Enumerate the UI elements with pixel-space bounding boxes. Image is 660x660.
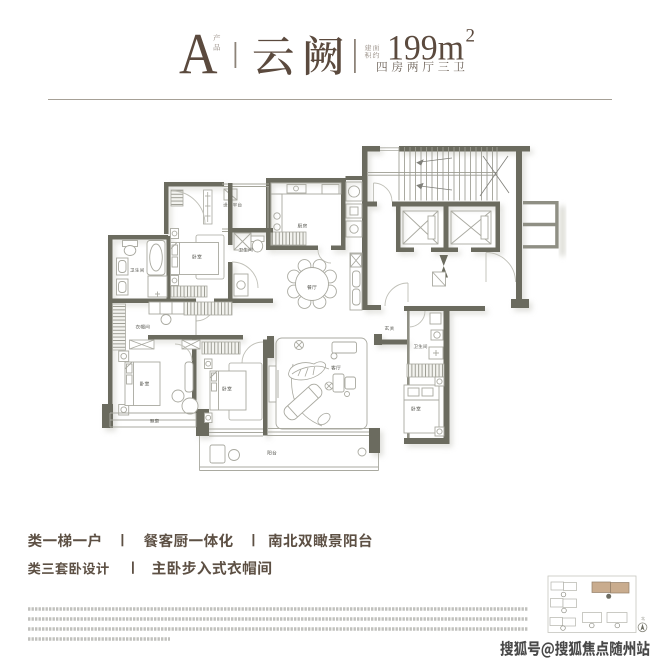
svg-text:A: A — [179, 23, 218, 88]
svg-text:2: 2 — [466, 26, 476, 47]
svg-text:199m: 199m — [387, 28, 464, 68]
